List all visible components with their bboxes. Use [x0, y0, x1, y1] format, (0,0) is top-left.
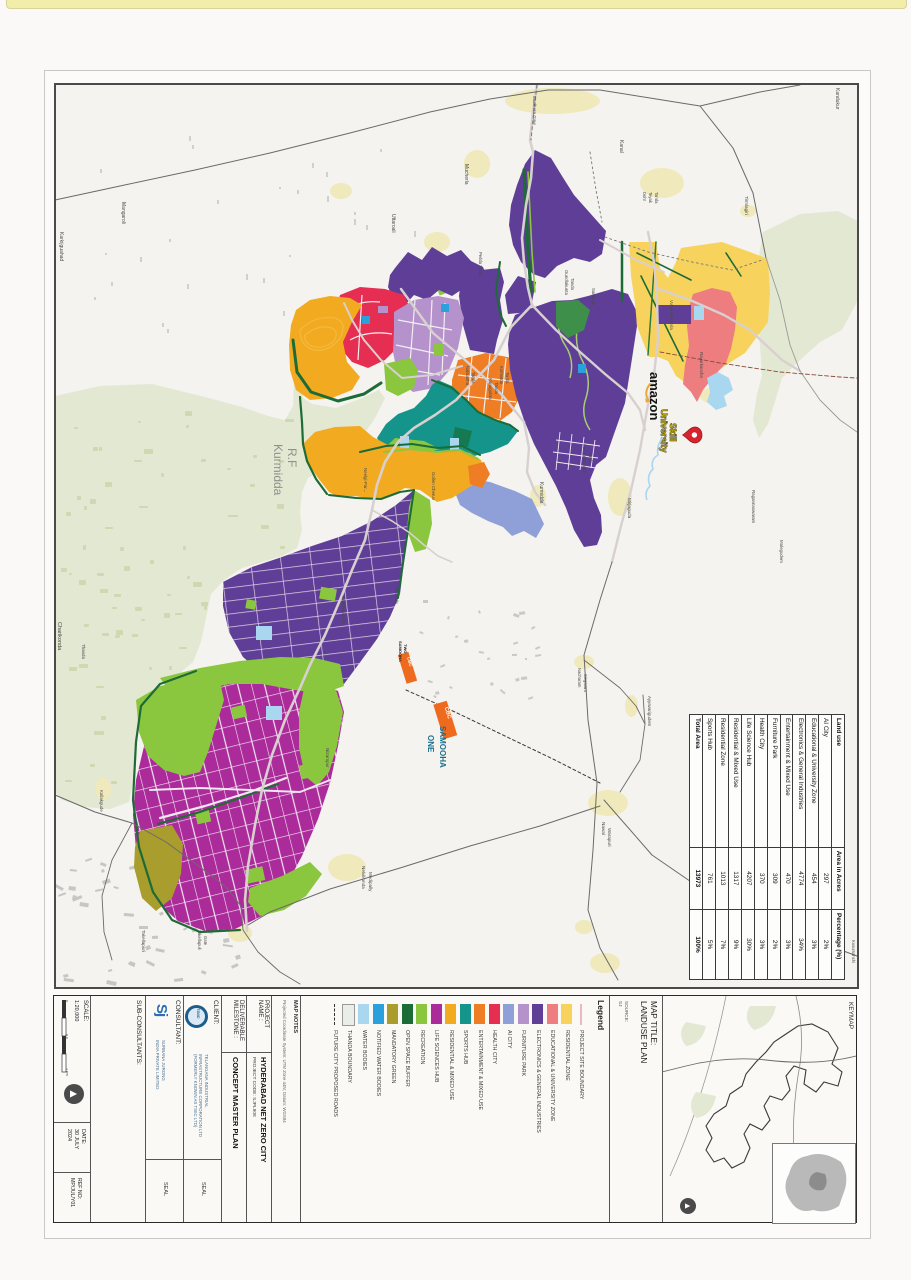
- svg-text:1 km: 1 km: [65, 1068, 68, 1076]
- svg-text:0: 0: [65, 1000, 68, 1002]
- svg-text:0.5: 0.5: [65, 1034, 68, 1039]
